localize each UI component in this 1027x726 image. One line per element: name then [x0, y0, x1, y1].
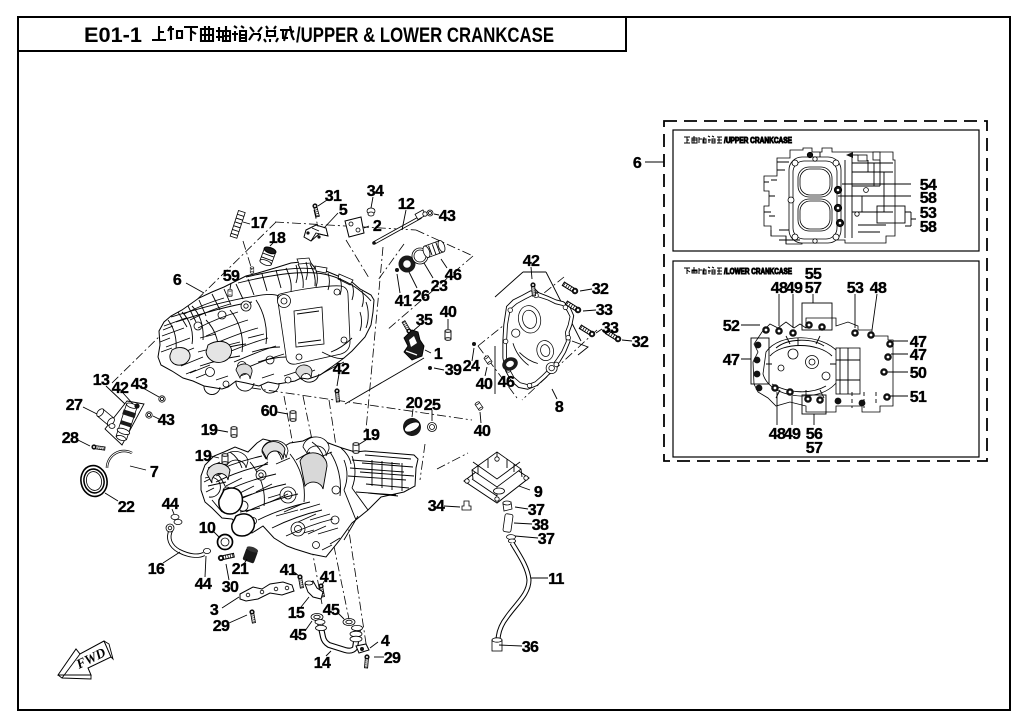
svg-text:15: 15: [288, 605, 305, 622]
svg-text:37: 37: [538, 531, 555, 548]
svg-text:34: 34: [428, 498, 445, 515]
svg-text:50: 50: [910, 365, 927, 382]
svg-text:22: 22: [118, 499, 135, 516]
svg-text:29: 29: [213, 618, 230, 635]
svg-text:41: 41: [395, 293, 412, 310]
svg-text:44: 44: [162, 496, 179, 513]
svg-text:43: 43: [439, 208, 456, 225]
svg-text:19: 19: [201, 422, 218, 439]
svg-text:9: 9: [534, 484, 543, 501]
svg-text:46: 46: [445, 267, 462, 284]
svg-text:27: 27: [66, 397, 83, 414]
svg-text:57: 57: [806, 440, 823, 457]
svg-text:1: 1: [434, 346, 443, 363]
svg-text:33: 33: [602, 320, 619, 337]
svg-text:45: 45: [323, 602, 340, 619]
svg-text:45: 45: [290, 627, 307, 644]
svg-text:/UPPER CRANKCASE: /UPPER CRANKCASE: [724, 136, 793, 145]
svg-text:8: 8: [555, 399, 564, 416]
svg-text:30: 30: [222, 579, 239, 596]
svg-text:33: 33: [596, 302, 613, 319]
svg-text:59: 59: [223, 268, 240, 285]
svg-text:58: 58: [920, 219, 937, 236]
svg-text:47: 47: [723, 352, 740, 369]
svg-text:13: 13: [93, 372, 110, 389]
svg-text:40: 40: [440, 304, 457, 321]
svg-text:25: 25: [424, 397, 441, 414]
svg-text:7: 7: [150, 464, 159, 481]
svg-text:46: 46: [498, 374, 515, 391]
svg-text:43: 43: [131, 376, 148, 393]
svg-text:36: 36: [522, 639, 539, 656]
svg-text:53: 53: [847, 280, 864, 297]
svg-text:5: 5: [339, 202, 348, 219]
svg-text:19: 19: [195, 448, 212, 465]
svg-text:32: 32: [592, 281, 609, 298]
svg-text:48: 48: [870, 280, 887, 297]
svg-text:51: 51: [910, 389, 927, 406]
svg-text:44: 44: [195, 576, 212, 593]
svg-text:2: 2: [373, 218, 382, 235]
svg-text:40: 40: [476, 376, 493, 393]
svg-text:42: 42: [523, 253, 540, 270]
svg-text:12: 12: [398, 196, 415, 213]
svg-text:60: 60: [261, 403, 278, 420]
svg-text:40: 40: [474, 423, 491, 440]
svg-text:18: 18: [269, 230, 286, 247]
svg-text:/LOWER CRANKCASE: /LOWER CRANKCASE: [724, 267, 793, 276]
svg-text:35: 35: [416, 312, 433, 329]
svg-text:52: 52: [723, 318, 740, 335]
svg-text:3: 3: [210, 602, 219, 619]
svg-text:26: 26: [413, 288, 430, 305]
svg-text:41: 41: [320, 569, 337, 586]
svg-text:34: 34: [367, 183, 384, 200]
svg-text:11: 11: [548, 571, 564, 588]
svg-text:57: 57: [805, 280, 822, 297]
svg-text:16: 16: [148, 561, 165, 578]
svg-text:47: 47: [910, 347, 927, 364]
svg-text:32: 32: [632, 334, 649, 351]
svg-text:28: 28: [62, 430, 79, 447]
svg-text:17: 17: [251, 215, 268, 232]
svg-text:42: 42: [333, 361, 350, 378]
svg-text:20: 20: [406, 395, 423, 412]
svg-text:49: 49: [784, 426, 801, 443]
svg-text:10: 10: [199, 520, 216, 537]
svg-text:24: 24: [463, 358, 480, 375]
svg-text:4: 4: [381, 633, 390, 650]
svg-text:14: 14: [314, 655, 331, 672]
svg-text:/UPPER & LOWER CRANKCASE: /UPPER & LOWER CRANKCASE: [296, 24, 554, 47]
svg-text:49: 49: [786, 280, 803, 297]
svg-text:39: 39: [445, 362, 462, 379]
svg-text:19: 19: [363, 427, 380, 444]
svg-text:E01-1: E01-1: [84, 24, 142, 47]
svg-text:6: 6: [633, 155, 642, 172]
svg-text:21: 21: [232, 561, 249, 578]
svg-text:41: 41: [280, 562, 297, 579]
svg-text:6: 6: [173, 272, 182, 289]
svg-text:42: 42: [112, 380, 129, 397]
svg-text:43: 43: [158, 412, 175, 429]
svg-text:29: 29: [384, 650, 401, 667]
